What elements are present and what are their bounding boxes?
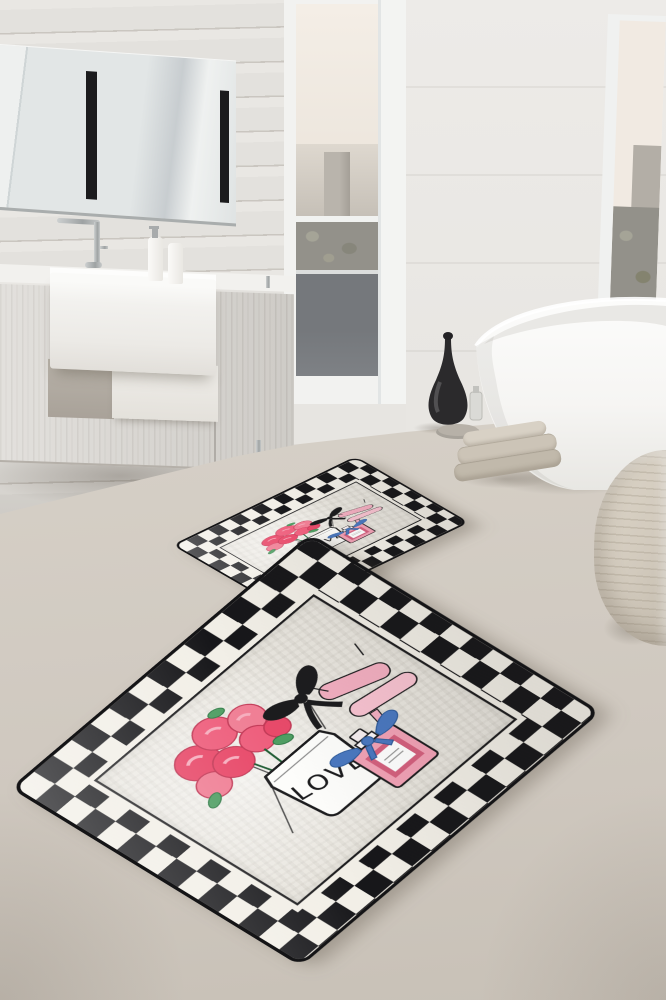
faucet-handle xyxy=(100,246,108,249)
window-middle xyxy=(284,0,406,406)
cabinet-handle xyxy=(266,276,270,288)
soap-dispenser xyxy=(148,237,163,281)
skyscraper xyxy=(324,152,350,216)
glass-bottle xyxy=(470,392,482,420)
dispenser-pump xyxy=(152,228,158,238)
mirror-light-strip xyxy=(220,90,229,203)
dispenser-spout xyxy=(149,226,159,229)
balcony-panel xyxy=(296,274,378,376)
mirror xyxy=(0,44,236,227)
window-frame xyxy=(378,0,406,406)
mirror-light-strip xyxy=(86,71,97,200)
skyscraper xyxy=(631,145,661,210)
glass-bottle-cap xyxy=(473,386,479,393)
black-vase xyxy=(429,335,468,425)
window-middle-glass xyxy=(296,4,378,376)
treetops xyxy=(296,222,378,270)
bathroom-scene: LOVE xyxy=(0,0,666,1000)
faucet-base xyxy=(85,262,102,268)
tumbler xyxy=(168,243,183,284)
faucet-body xyxy=(94,222,100,266)
vase-knob xyxy=(443,332,453,340)
farmhouse-sink xyxy=(50,272,216,375)
